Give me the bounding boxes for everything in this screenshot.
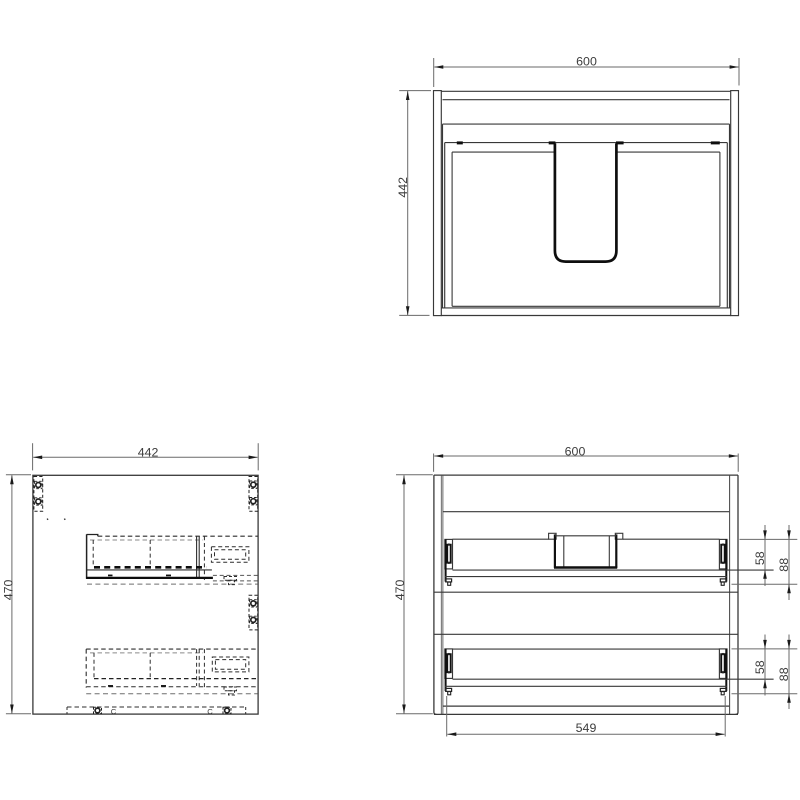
svg-text:442: 442 — [396, 177, 410, 198]
svg-text:58: 58 — [753, 660, 767, 674]
svg-text:600: 600 — [565, 445, 586, 459]
svg-text:442: 442 — [138, 446, 159, 460]
svg-text:C: C — [111, 707, 117, 716]
svg-text:470: 470 — [393, 579, 407, 600]
svg-text:549: 549 — [576, 721, 597, 735]
svg-text:600: 600 — [576, 55, 597, 69]
svg-text:58: 58 — [753, 551, 767, 565]
svg-text:C: C — [207, 707, 213, 716]
svg-text:88: 88 — [777, 667, 791, 681]
svg-text:470: 470 — [2, 579, 16, 600]
svg-text:88: 88 — [777, 558, 791, 572]
